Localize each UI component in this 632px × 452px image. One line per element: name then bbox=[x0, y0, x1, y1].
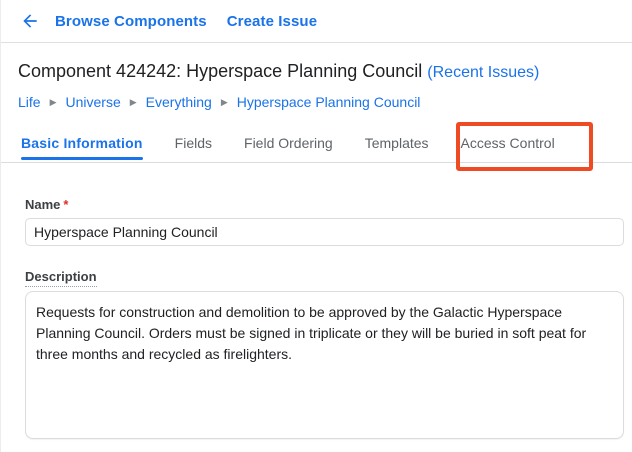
page-title-row: Component 424242: Hyperspace Planning Co… bbox=[18, 59, 632, 85]
description-label-text: Description bbox=[25, 269, 97, 287]
tab-label: Access Control bbox=[461, 135, 555, 152]
tab-templates[interactable]: Templates bbox=[349, 124, 445, 162]
name-label-text: Name bbox=[25, 197, 60, 212]
description-textarea[interactable]: Requests for construction and demolition… bbox=[25, 291, 624, 439]
tab-access-control[interactable]: Access Control bbox=[445, 124, 571, 162]
create-issue-link[interactable]: Create Issue bbox=[227, 13, 317, 30]
tab-label: Basic Information bbox=[21, 135, 143, 152]
tab-label: Field Ordering bbox=[244, 135, 333, 152]
tab-field-ordering[interactable]: Field Ordering bbox=[228, 124, 349, 162]
breadcrumb-separator-icon: ▶ bbox=[50, 92, 57, 112]
browse-components-link[interactable]: Browse Components bbox=[55, 13, 207, 30]
breadcrumb-item-everything[interactable]: Everything bbox=[146, 92, 212, 112]
breadcrumb-separator-icon: ▶ bbox=[221, 92, 228, 112]
tab-fields[interactable]: Fields bbox=[159, 124, 228, 162]
top-navigation-bar: Browse Components Create Issue bbox=[1, 0, 632, 43]
tab-label: Fields bbox=[175, 135, 212, 152]
required-asterisk: * bbox=[63, 197, 68, 212]
basic-information-form: Name* Description Requests for construct… bbox=[25, 197, 624, 439]
breadcrumb-item-life[interactable]: Life bbox=[18, 92, 41, 112]
tab-basic-information[interactable]: Basic Information bbox=[5, 124, 159, 162]
breadcrumb-item-component[interactable]: Hyperspace Planning Council bbox=[237, 92, 421, 112]
breadcrumb-item-universe[interactable]: Universe bbox=[66, 92, 121, 112]
tab-bar: Basic Information Fields Field Ordering … bbox=[1, 124, 632, 163]
breadcrumb-separator-icon: ▶ bbox=[130, 92, 137, 112]
description-field-label: Description bbox=[25, 269, 624, 285]
component-edit-page: Browse Components Create Issue Component… bbox=[0, 0, 632, 452]
name-field-label: Name* bbox=[25, 197, 624, 213]
recent-issues-link[interactable]: (Recent Issues) bbox=[427, 64, 539, 81]
page-title: Component 424242: Hyperspace Planning Co… bbox=[18, 61, 422, 81]
back-arrow-icon[interactable] bbox=[19, 10, 41, 32]
name-input[interactable] bbox=[25, 218, 624, 246]
tab-label: Templates bbox=[365, 135, 429, 152]
breadcrumb: Life ▶ Universe ▶ Everything ▶ Hyperspac… bbox=[18, 92, 632, 112]
